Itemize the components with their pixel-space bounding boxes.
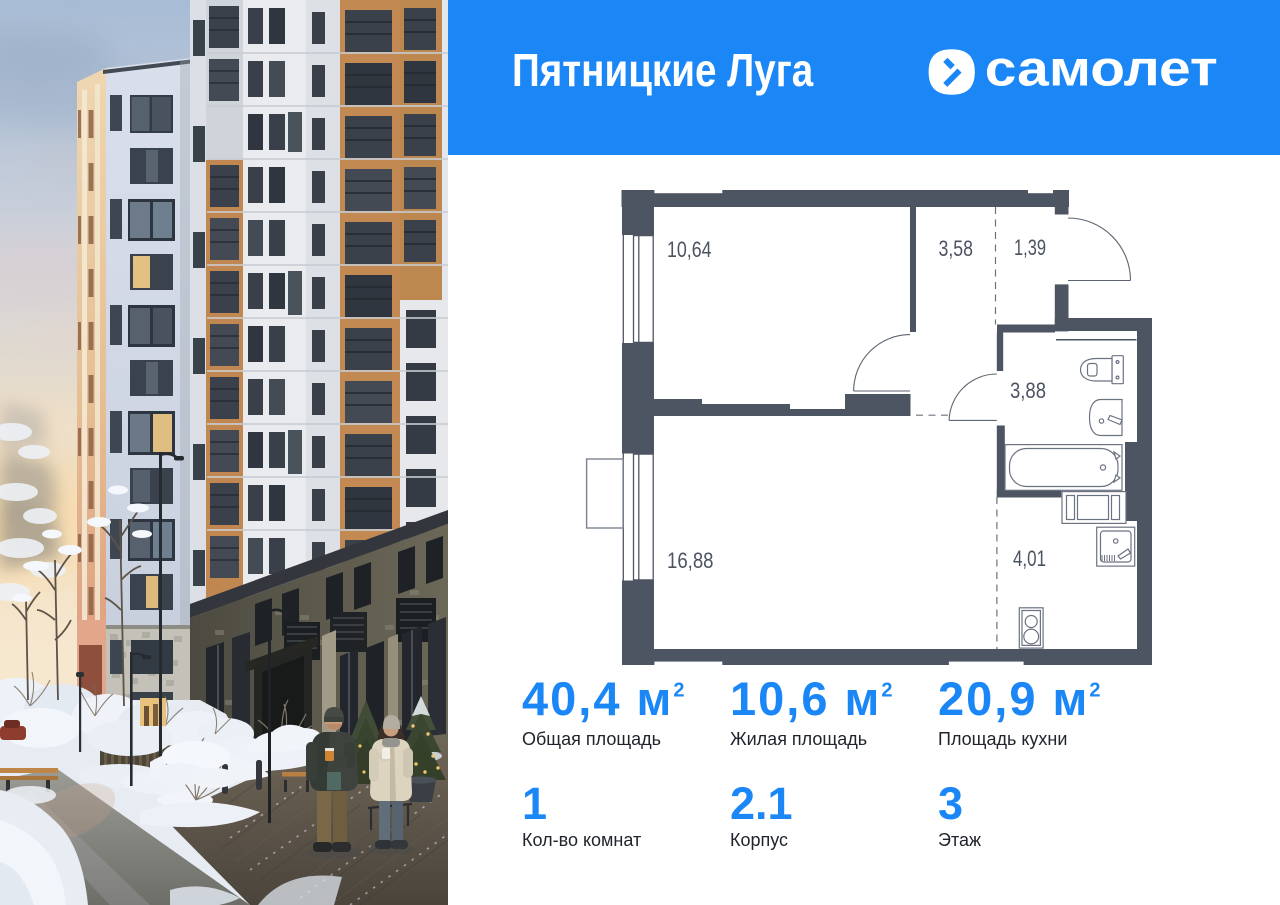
svg-text:1,39: 1,39 — [1014, 235, 1046, 260]
svg-text:10,64: 10,64 — [667, 237, 712, 262]
svg-text:16,88: 16,88 — [667, 548, 714, 573]
svg-text:4,01: 4,01 — [1013, 546, 1046, 571]
svg-text:3,58: 3,58 — [939, 236, 974, 261]
svg-text:3,88: 3,88 — [1010, 378, 1046, 403]
